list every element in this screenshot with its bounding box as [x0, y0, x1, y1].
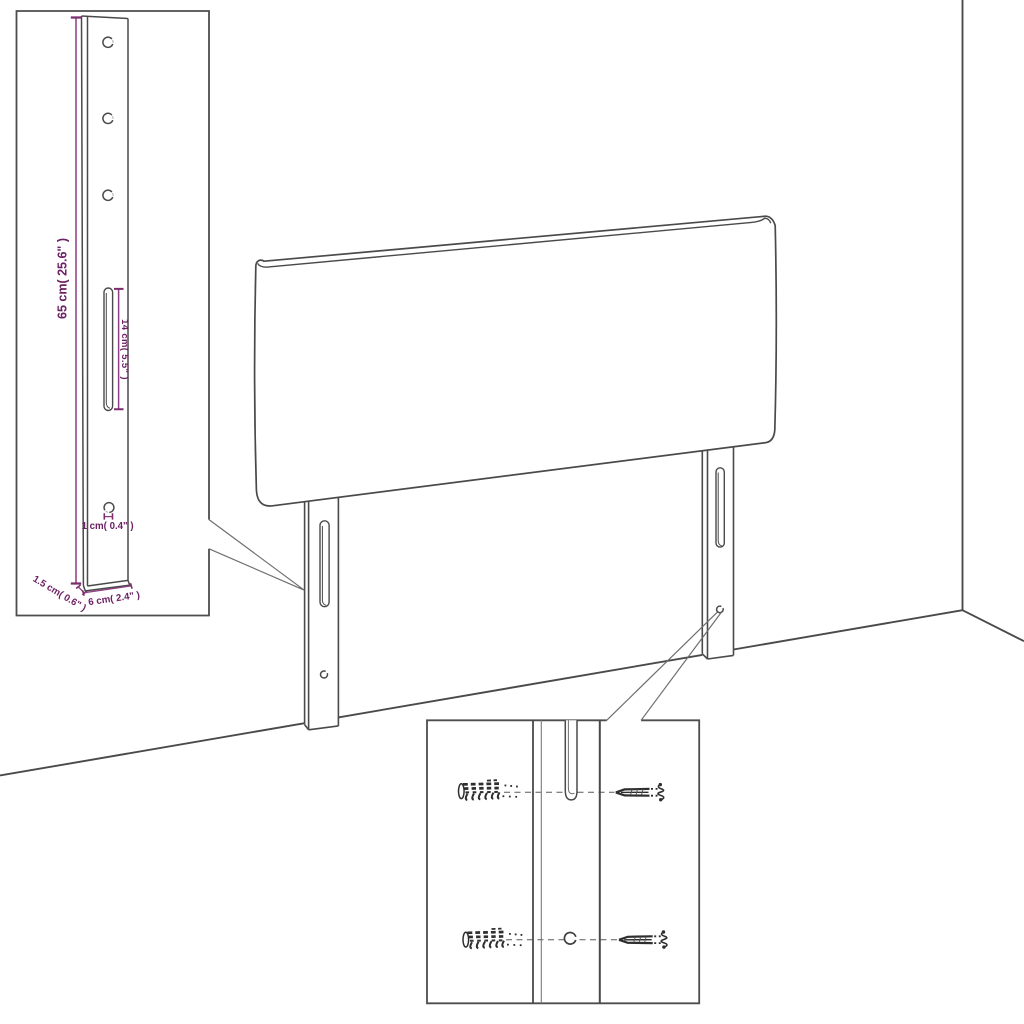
svg-text:14 cm( 5.5" ): 14 cm( 5.5" )	[119, 319, 130, 380]
svg-text:65 cm( 25.6" ): 65 cm( 25.6" )	[56, 238, 70, 319]
svg-text:1 cm( 0.4" ): 1 cm( 0.4" )	[82, 521, 134, 532]
